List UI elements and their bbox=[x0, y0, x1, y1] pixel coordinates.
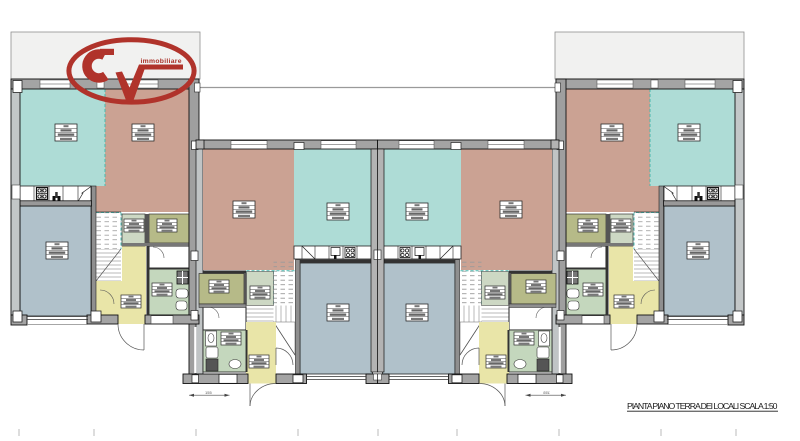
svg-text:PIANTA PIANO TERRA DEI LOCALI: PIANTA PIANO TERRA DEI LOCALI SCALA 1:50 bbox=[627, 401, 778, 411]
svg-text:immobiliare: immobiliare bbox=[141, 58, 182, 65]
svg-text:155: 155 bbox=[205, 390, 212, 395]
